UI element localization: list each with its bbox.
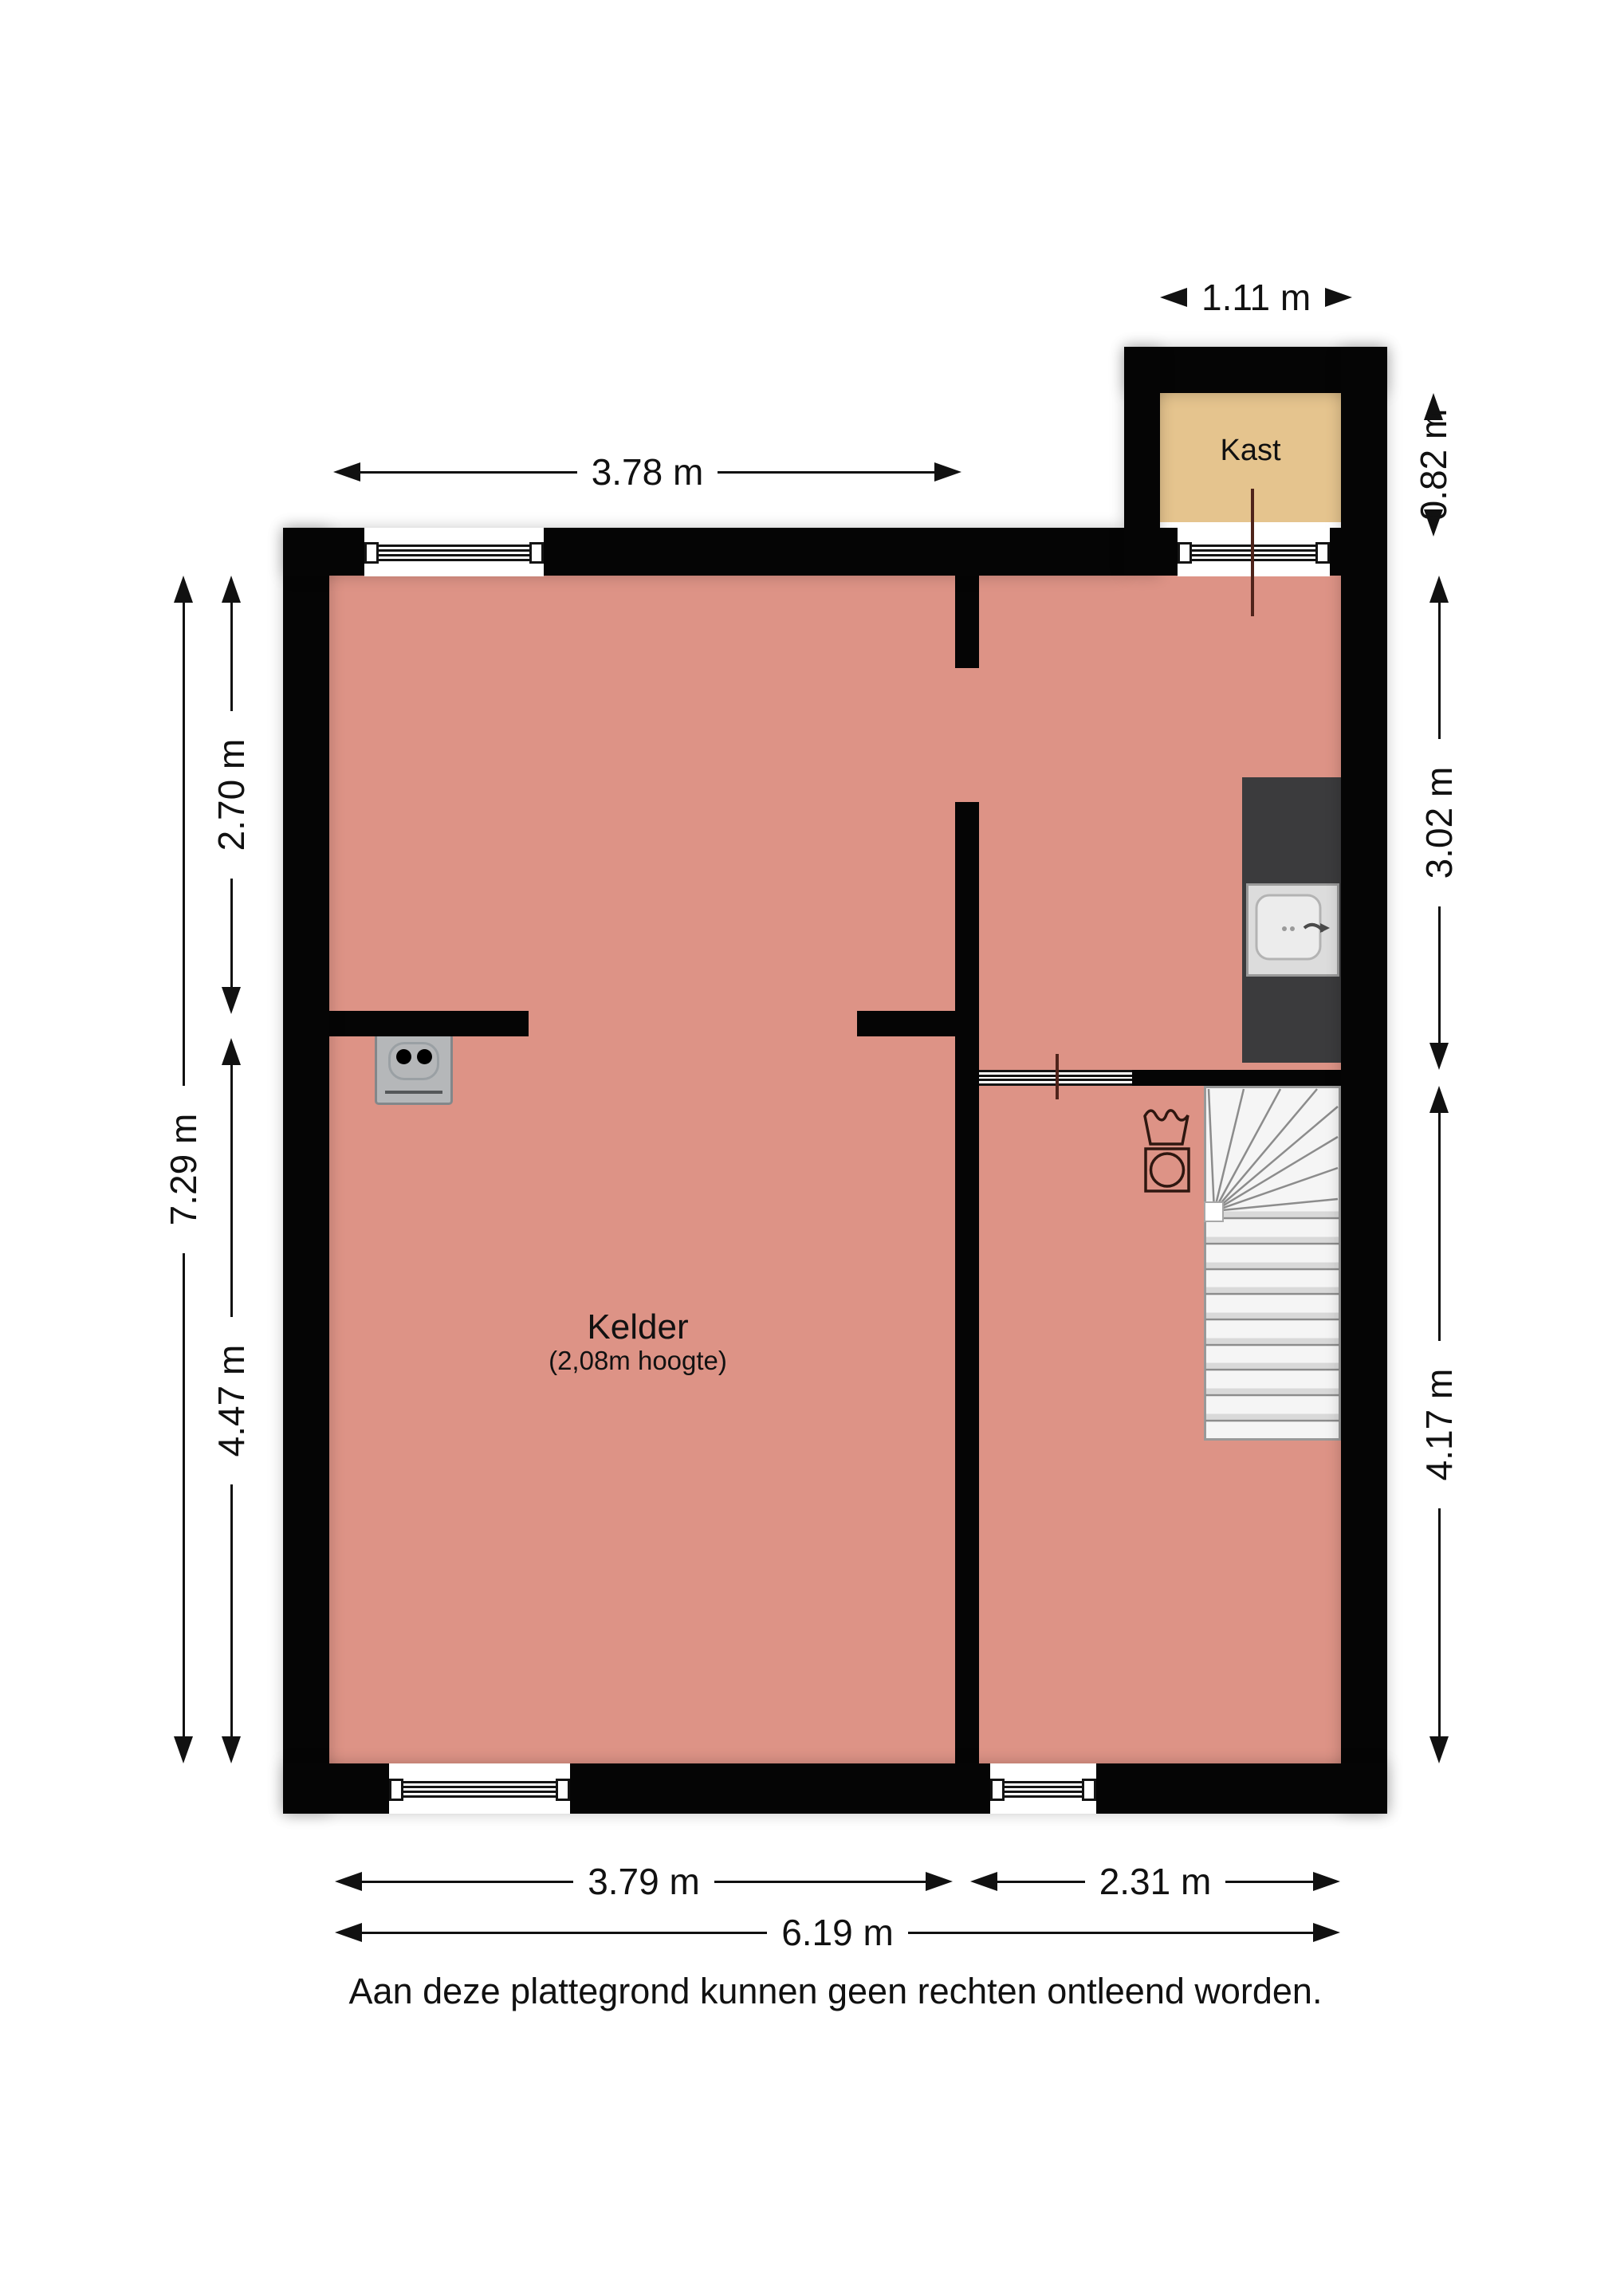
- arrowhead-icon: [222, 1038, 241, 1065]
- dimension-left-total: 7.29 m: [171, 576, 196, 1763]
- arrowhead-icon: [1313, 1872, 1340, 1891]
- arrowhead-icon: [174, 1736, 193, 1763]
- dimension-line: [1438, 1113, 1441, 1341]
- dimension-line: [230, 603, 233, 711]
- dimension-left-lower: 4.47 m: [218, 1038, 244, 1763]
- dimension-label: 3.02 m: [1421, 739, 1457, 906]
- arrowhead-icon: [1429, 1736, 1449, 1763]
- dimension-line: [1438, 603, 1441, 739]
- outlet-face: [388, 1042, 439, 1080]
- dimension-label: 6.19 m: [767, 1914, 908, 1951]
- room-label-kelder-height: (2,08m hoogte): [478, 1346, 797, 1376]
- staircase: [1204, 1086, 1341, 1441]
- arrowhead-icon: [222, 1736, 241, 1763]
- door-line-kast: [1251, 489, 1254, 616]
- dimension-right-kast: 0.82 m: [1421, 393, 1446, 526]
- kast-wall-left: [1124, 347, 1160, 576]
- dimension-label: 2.70 m: [213, 711, 250, 879]
- arrowhead-icon: [1429, 1086, 1449, 1113]
- window-top-left: [364, 528, 544, 576]
- dimension-label: 4.47 m: [213, 1317, 250, 1484]
- power-outlet: [375, 1033, 453, 1105]
- arrowhead-icon: [335, 1872, 362, 1891]
- dimension-label: 3.79 m: [573, 1863, 714, 1900]
- arrowhead-icon: [333, 462, 360, 482]
- newel-post: [1205, 1202, 1223, 1221]
- outlet-pin: [417, 1049, 432, 1064]
- arrowhead-icon: [1429, 1043, 1449, 1070]
- partition-arm-wall: [857, 1011, 955, 1036]
- partition-wall-lower: [955, 802, 979, 1763]
- outlet-pin: [396, 1049, 411, 1064]
- window-bottom-right: [990, 1763, 1096, 1814]
- room-label-kelder: Kelder: [478, 1307, 797, 1348]
- kitchen-sink-icon: [1246, 883, 1339, 977]
- dimension-bottom-right: 2.31 m: [970, 1869, 1340, 1894]
- arrowhead-icon: [174, 576, 193, 603]
- arrowhead-icon: [335, 1923, 362, 1942]
- arrowhead-icon: [1160, 288, 1187, 307]
- dimension-line: [362, 1932, 767, 1934]
- washing-machine-icon: [1142, 1107, 1193, 1196]
- door-line-interior: [1056, 1054, 1059, 1099]
- disclaimer-text: Aan deze plattegrond kunnen geen rechten…: [333, 1971, 1338, 2012]
- dimension-label: 3.78 m: [577, 454, 718, 490]
- dimension-line: [183, 603, 185, 1086]
- floor-plan-canvas: Kast Kelder (2,08m hoogte) 1.11 m 3.78 m…: [0, 0, 1624, 2296]
- room-label-kast: Kast: [1160, 434, 1341, 469]
- interior-wall-right: [1132, 1070, 1341, 1086]
- dimension-line: [997, 1881, 1085, 1883]
- stub-wall-left: [329, 1011, 529, 1036]
- window-bottom-left: [389, 1763, 570, 1814]
- dimension-label: 7.29 m: [165, 1086, 202, 1253]
- dimension-label: 0.82 m: [1415, 420, 1452, 509]
- dimension-left-upper: 2.70 m: [218, 576, 244, 1014]
- arrowhead-icon: [1313, 1923, 1340, 1942]
- outer-wall-right: [1341, 347, 1387, 1814]
- dimension-label: 1.11 m: [1187, 279, 1325, 316]
- outer-wall-left: [283, 528, 329, 1814]
- dimension-right-upper: 3.02 m: [1426, 576, 1452, 1070]
- partition-wall-upper: [955, 576, 979, 668]
- dimension-top-width: 3.78 m: [333, 459, 961, 485]
- dimension-right-lower: 4.17 m: [1426, 1086, 1452, 1763]
- dimension-line: [360, 471, 577, 474]
- arrowhead-icon: [1325, 288, 1352, 307]
- outlet-slot: [385, 1091, 442, 1094]
- arrowhead-icon: [222, 576, 241, 603]
- dimension-line: [362, 1881, 573, 1883]
- dimension-bottom-left: 3.79 m: [335, 1869, 953, 1894]
- dimension-bottom-total: 6.19 m: [335, 1920, 1340, 1945]
- arrowhead-icon: [222, 987, 241, 1014]
- dimension-label: 4.17 m: [1421, 1341, 1457, 1508]
- arrowhead-icon: [926, 1872, 953, 1891]
- arrowhead-icon: [1429, 576, 1449, 603]
- dimension-kast-width: 1.11 m: [1160, 285, 1338, 310]
- arrowhead-icon: [934, 462, 961, 482]
- dimension-line: [230, 1065, 233, 1317]
- dimension-label: 2.31 m: [1085, 1863, 1226, 1900]
- arrowhead-icon: [970, 1872, 997, 1891]
